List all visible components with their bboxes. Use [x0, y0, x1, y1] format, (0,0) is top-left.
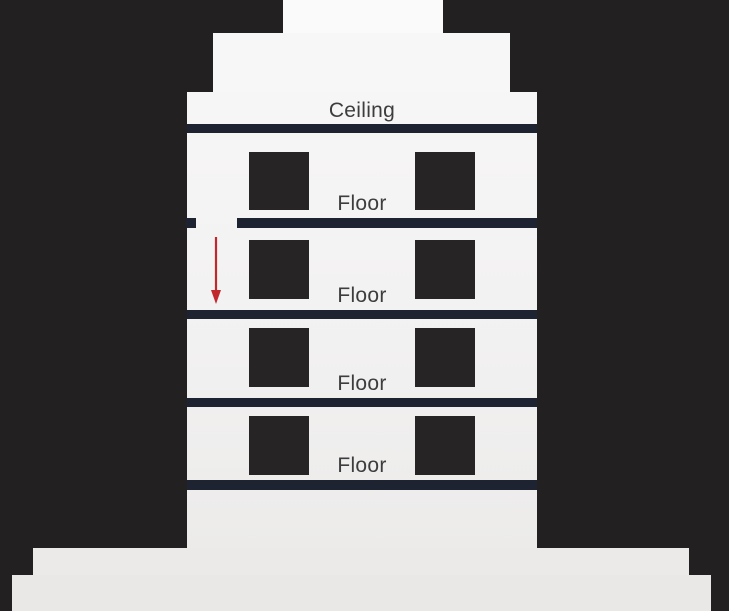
floor-slab-stub — [186, 218, 196, 228]
floor-label: Floor — [187, 454, 537, 477]
floor-slab — [187, 398, 537, 407]
base-step-lower — [12, 575, 711, 611]
base-step-upper — [33, 548, 689, 576]
roof-tier-top — [283, 0, 443, 35]
roof-tier-middle — [213, 33, 510, 93]
floor-slab — [237, 218, 537, 228]
floor-slab — [187, 310, 537, 319]
floor-slab — [187, 480, 537, 490]
floor-label: Floor — [187, 192, 537, 215]
floor-label: Floor — [187, 284, 537, 307]
building-cross-section-diagram: Ceiling Floor Floor Floor Floor — [0, 0, 729, 611]
ceiling-slab — [187, 124, 537, 133]
floor-label: Floor — [187, 372, 537, 395]
ceiling-label: Ceiling — [187, 99, 537, 122]
